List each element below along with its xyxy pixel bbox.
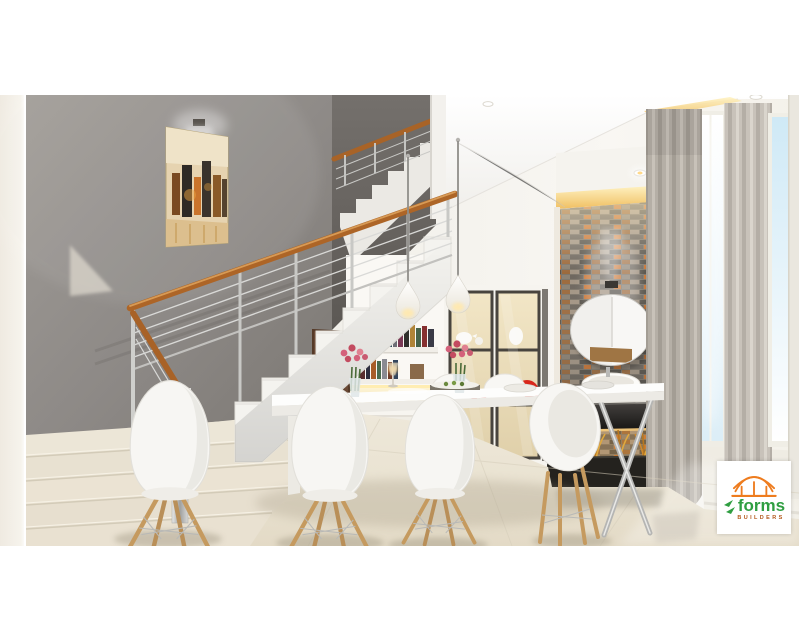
faucet [606, 367, 610, 377]
window-frame-edge [788, 95, 799, 499]
wall-art-cityscape [166, 110, 228, 247]
logo-subtext: BUILDERS [737, 515, 784, 521]
builder-logo: forms BUILDERS [717, 461, 791, 534]
curtain-left [646, 109, 702, 515]
logo-arch-icon [723, 465, 785, 499]
mirror-door-reflection [590, 347, 632, 363]
wall-sconce [605, 281, 618, 288]
logo-name: forms [738, 497, 785, 514]
round-mirror [571, 295, 651, 365]
window-wall [646, 95, 799, 519]
logo-arrows-icon [723, 499, 736, 514]
interior-render [0, 95, 799, 546]
curtain-reflection [652, 511, 700, 543]
picture-spotlight [193, 119, 205, 126]
interior-visualization: forms BUILDERS [0, 0, 799, 639]
shelf [352, 379, 438, 384]
render-area [0, 95, 799, 546]
curtain-right [724, 103, 772, 507]
